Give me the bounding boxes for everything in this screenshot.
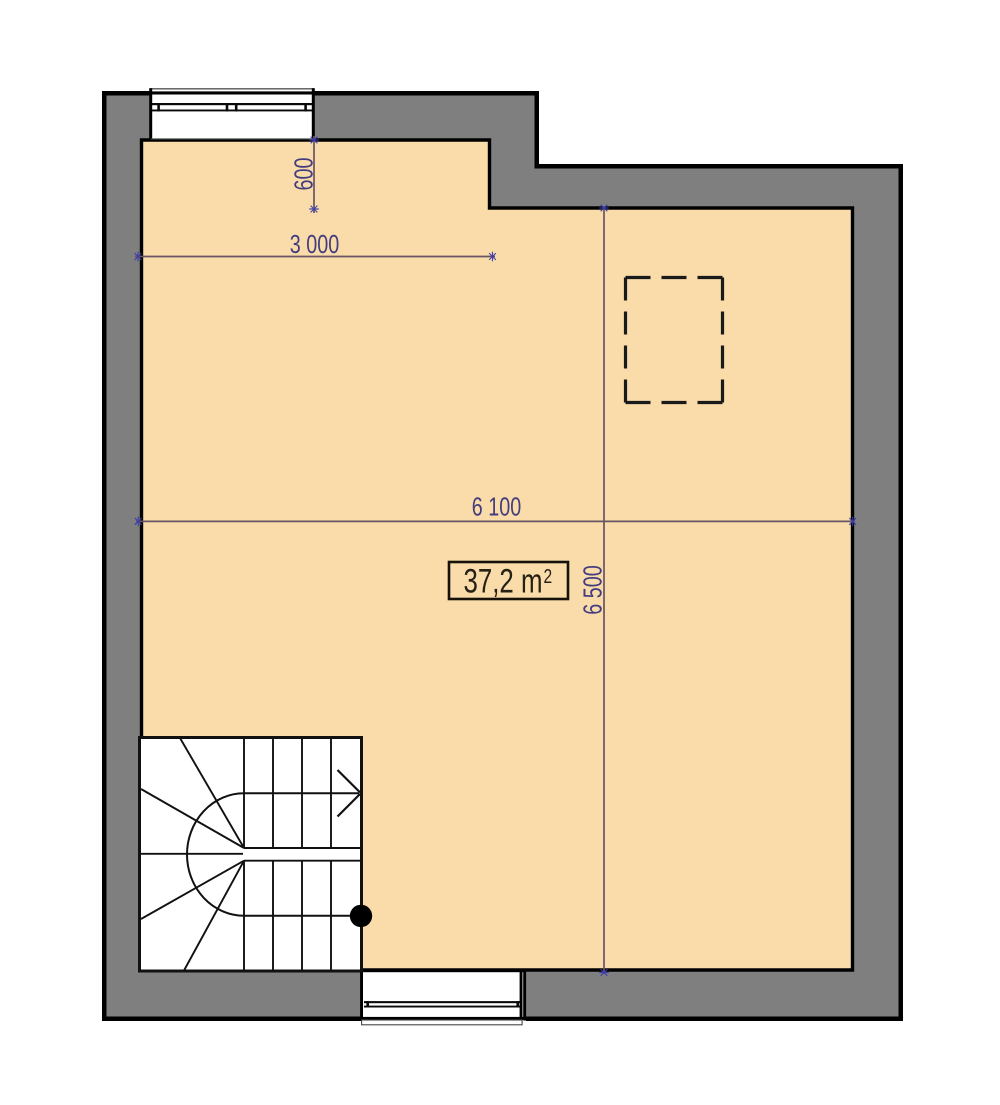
svg-text:3 000: 3 000: [290, 229, 339, 258]
svg-text:37,2 m: 37,2 m: [464, 563, 543, 600]
svg-text:2: 2: [544, 565, 553, 588]
svg-text:6 500: 6 500: [578, 565, 607, 614]
svg-text:600: 600: [289, 158, 318, 191]
svg-text:6 100: 6 100: [472, 492, 521, 521]
